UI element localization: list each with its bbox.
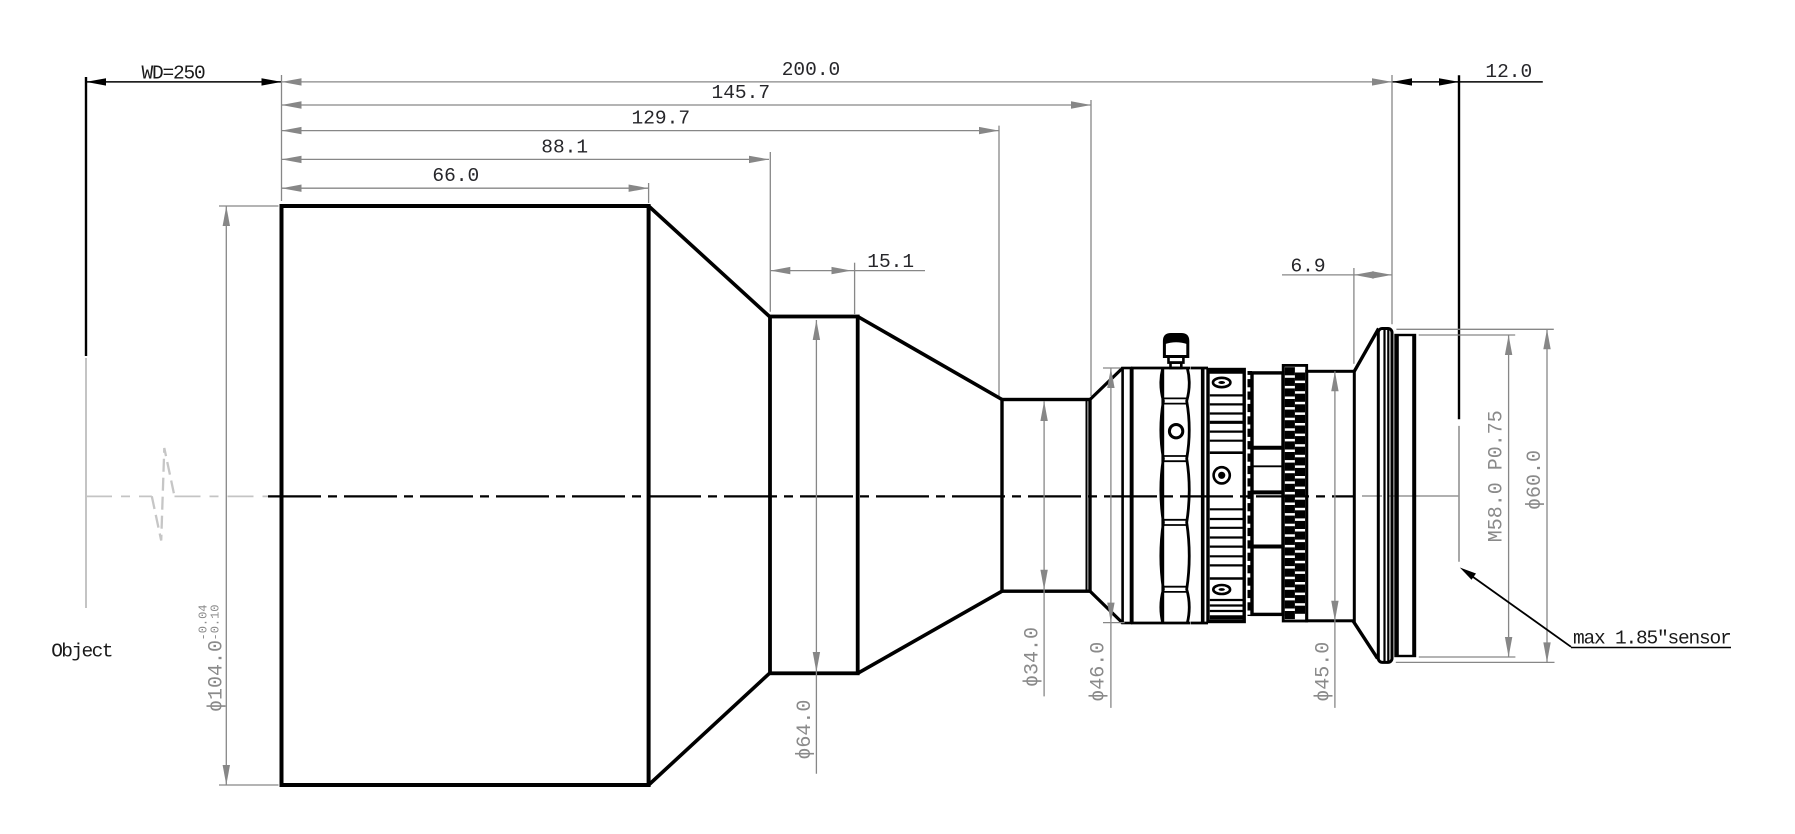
svg-text:15.1: 15.1: [867, 251, 914, 273]
svg-text:ϕ64.0: ϕ64.0: [794, 700, 817, 760]
svg-text:Object: Object: [51, 641, 112, 663]
svg-text:ϕ60.0: ϕ60.0: [1524, 450, 1547, 510]
svg-text:-0.10: -0.10: [209, 604, 223, 640]
svg-text:max 1.85″sensor: max 1.85″sensor: [1573, 628, 1731, 650]
svg-text:129.7: 129.7: [632, 108, 691, 130]
svg-text:66.0: 66.0: [432, 165, 479, 187]
svg-text:145.7: 145.7: [712, 82, 771, 104]
svg-text:ϕ34.0: ϕ34.0: [1022, 627, 1045, 687]
svg-text:WD=250: WD=250: [141, 63, 205, 85]
svg-text:ϕ104.0: ϕ104.0: [206, 640, 229, 712]
svg-text:ϕ45.0: ϕ45.0: [1312, 642, 1335, 702]
svg-text:12.0: 12.0: [1485, 61, 1532, 83]
svg-text:200.0: 200.0: [782, 59, 841, 81]
svg-text:88.1: 88.1: [541, 136, 588, 158]
svg-text:M58.0 P0.75: M58.0 P0.75: [1486, 410, 1509, 542]
svg-text:6.9: 6.9: [1290, 255, 1325, 277]
svg-text:ϕ46.0: ϕ46.0: [1087, 642, 1110, 702]
